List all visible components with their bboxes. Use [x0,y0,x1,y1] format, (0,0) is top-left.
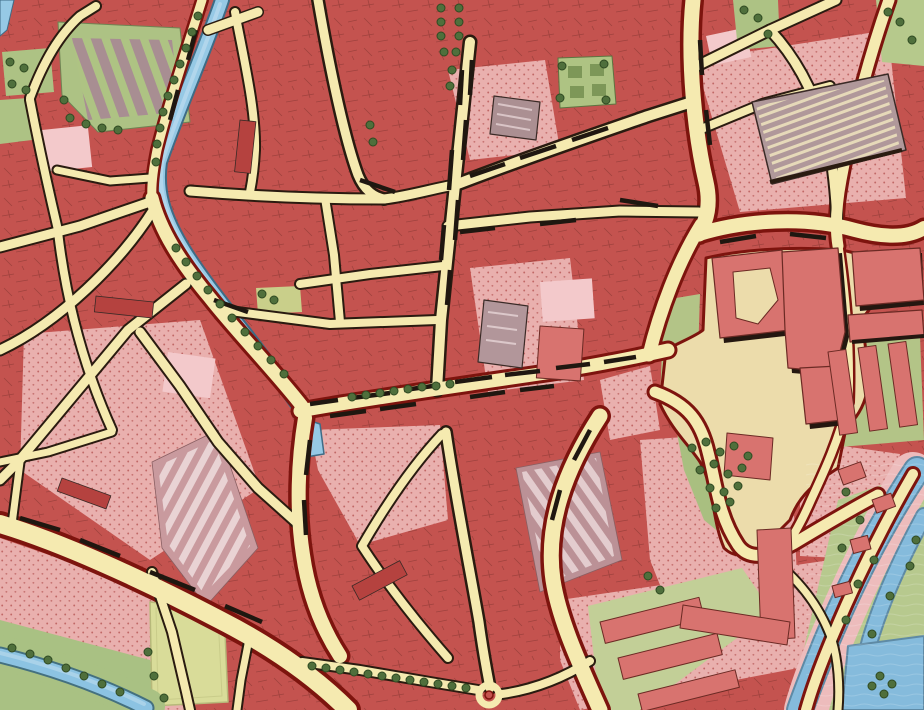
tree-icon [446,380,454,388]
tree-icon [241,328,249,336]
tree-icon [446,82,454,90]
tree-icon [656,586,664,594]
tree-icon [216,300,224,308]
city-map-viewport[interactable] [0,0,924,710]
tree-icon [6,58,14,66]
tree-icon [116,688,124,696]
tree-icon [176,60,184,68]
tree-icon [437,4,445,12]
tree-icon [710,460,718,468]
tree-icon [888,680,896,688]
tree-icon [754,14,762,22]
tree-icon [378,672,386,680]
tree-icon [350,668,358,676]
tree-icon [150,672,158,680]
tree-icon [82,120,90,128]
tree-icon [22,86,30,94]
tree-icon [870,556,878,564]
tree-icon [8,644,16,652]
tree-icon [558,62,566,70]
tree-icon [8,80,16,88]
tree-icon [688,444,696,452]
tree-icon [62,664,70,672]
tree-icon [348,393,356,401]
tree-icon [160,694,168,702]
tree-icon [44,656,52,664]
tree-icon [404,385,412,393]
tree-icon [886,592,894,600]
tree-icon [194,12,202,20]
tree-icon [80,672,88,680]
tree-icon [434,680,442,688]
tree-icon [724,470,732,478]
tree-icon [838,544,846,552]
tree-icon [720,488,728,496]
tree-icon [20,64,28,72]
tree-icon [420,678,428,686]
tree-icon [159,108,167,116]
tree-icon [908,36,916,44]
tree-icon [26,650,34,658]
tree-icon [270,296,278,304]
tree-icon [452,48,460,56]
tree-icon [390,387,398,395]
tree-icon [366,121,374,129]
tree-icon [364,670,372,678]
tree-icon [228,314,236,322]
tree-icon [716,448,724,456]
tree-icon [868,630,876,638]
tree-icon [60,96,68,104]
tree-icon [369,138,377,146]
tree-icon [406,676,414,684]
tree-icon [432,382,440,390]
tree-icon [322,664,330,672]
tree-icon [153,140,161,148]
tree-icon [188,28,196,36]
tree-icon [448,682,456,690]
tree-icon [726,498,734,506]
tree-icon [602,96,610,104]
tree-icon [455,4,463,12]
tree-icon [440,48,448,56]
tree-icon [182,44,190,52]
tree-icon [896,18,904,26]
tree-icon [744,452,752,460]
tree-icon [730,442,738,450]
tree-icon [144,648,152,656]
tree-icon [114,126,122,134]
tree-icon [258,290,266,298]
tree-icon [854,580,862,588]
tree-icon [740,6,748,14]
tree-icon [437,32,445,40]
tree-icon [182,258,190,266]
tree-icon [193,272,201,280]
tree-icon [392,674,400,682]
tree-icon [448,66,456,74]
tree-icon [455,18,463,26]
tree-icon [734,482,742,490]
tree-icon [98,124,106,132]
tree-icon [738,464,746,472]
tree-icon [696,466,704,474]
tree-icon [437,18,445,26]
tree-icon [280,370,288,378]
tree-icon [868,682,876,690]
tree-icon [880,690,888,698]
tree-icon [884,8,892,16]
tree-icon [702,438,710,446]
tree-icon [376,389,384,397]
tree-icon [66,114,74,122]
tree-icon [164,92,172,100]
tree-icon [455,32,463,40]
tree-icon [912,536,920,544]
tree-icon [308,662,316,670]
tree-icon [556,94,564,102]
tree-icon [170,76,178,84]
tree-icon [336,666,344,674]
roundabout [478,684,500,706]
tree-icon [462,684,470,692]
tree-icon [842,488,850,496]
tree-icon [152,158,160,166]
historic-city-map[interactable] [0,0,924,710]
tree-icon [876,672,884,680]
tree-icon [764,30,772,38]
tree-icon [418,383,426,391]
tree-icon [906,562,914,570]
tree-icon [267,356,275,364]
tree-icon [362,391,370,399]
tree-icon [706,484,714,492]
tree-icon [98,680,106,688]
tree-icon [204,286,212,294]
tree-icon [172,244,180,252]
tree-icon [644,572,652,580]
tree-icon [842,616,850,624]
tree-icon [856,516,864,524]
tree-icon [254,342,262,350]
tree-icon [712,504,720,512]
tree-icon [600,60,608,68]
tree-icon [156,124,164,132]
